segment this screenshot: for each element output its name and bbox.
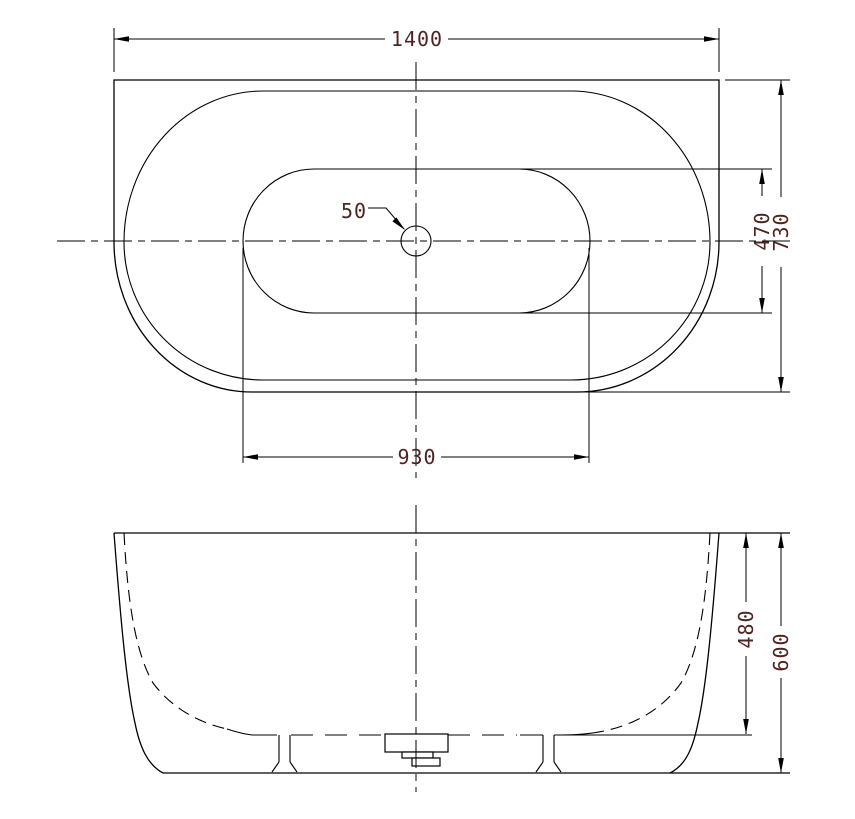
dim-inner-depth: 480 (734, 533, 758, 734)
tub-right-wall (670, 533, 719, 773)
drain-neck (402, 752, 433, 758)
dim-930-arrow-right (574, 454, 589, 460)
dim-730-arrow-top (778, 80, 784, 95)
dim-50-arrow (392, 217, 407, 232)
dim-50-leader-line (368, 208, 404, 229)
tub-inner-wall-left-hidden (124, 533, 227, 729)
dim-480-arrow-top (743, 533, 749, 548)
dim-480-arrow-bottom (743, 719, 749, 734)
dim-600-arrow-top (778, 533, 784, 548)
top-view: 1400 730 470 930 (57, 27, 793, 478)
foot-right-stem (543, 735, 554, 762)
tub-inner-wall-left-tail (227, 729, 252, 735)
foot-right-base (536, 762, 561, 772)
dim-470-arrow-top (759, 169, 765, 184)
dim-470-arrow-bottom (759, 298, 765, 313)
front-view: 480 600 (114, 505, 793, 792)
tub-rim-edge-plan (124, 91, 710, 380)
dim-930-label: 930 (397, 445, 436, 469)
bathtub-technical-drawing: 1400 730 470 930 (0, 0, 855, 819)
dim-1400-arrow-left (114, 36, 129, 42)
drawing-canvas: 1400 730 470 930 (0, 0, 855, 819)
dim-930-arrow-left (243, 454, 258, 460)
dim-600-arrow-bottom (778, 758, 784, 773)
tub-inner-wall-right-tail (560, 731, 604, 735)
dim-1400-arrow-right (704, 36, 719, 42)
tub-left-wall (114, 533, 163, 773)
foot-left-stem (279, 735, 290, 762)
foot-left (272, 735, 297, 772)
foot-left-base (272, 762, 297, 772)
dim-470-label: 470 (750, 211, 774, 250)
dim-50-label: 50 (341, 199, 367, 223)
tub-inner-wall-right-hidden (604, 533, 710, 731)
foot-right (536, 735, 561, 772)
dim-1400-label: 1400 (391, 27, 443, 51)
dim-730-arrow-bottom (778, 377, 784, 392)
dim-600-label: 600 (769, 632, 793, 671)
dim-drain-leader: 50 (341, 199, 407, 232)
dim-480-label: 480 (734, 609, 758, 648)
dim-overall-height: 600 (769, 533, 793, 773)
